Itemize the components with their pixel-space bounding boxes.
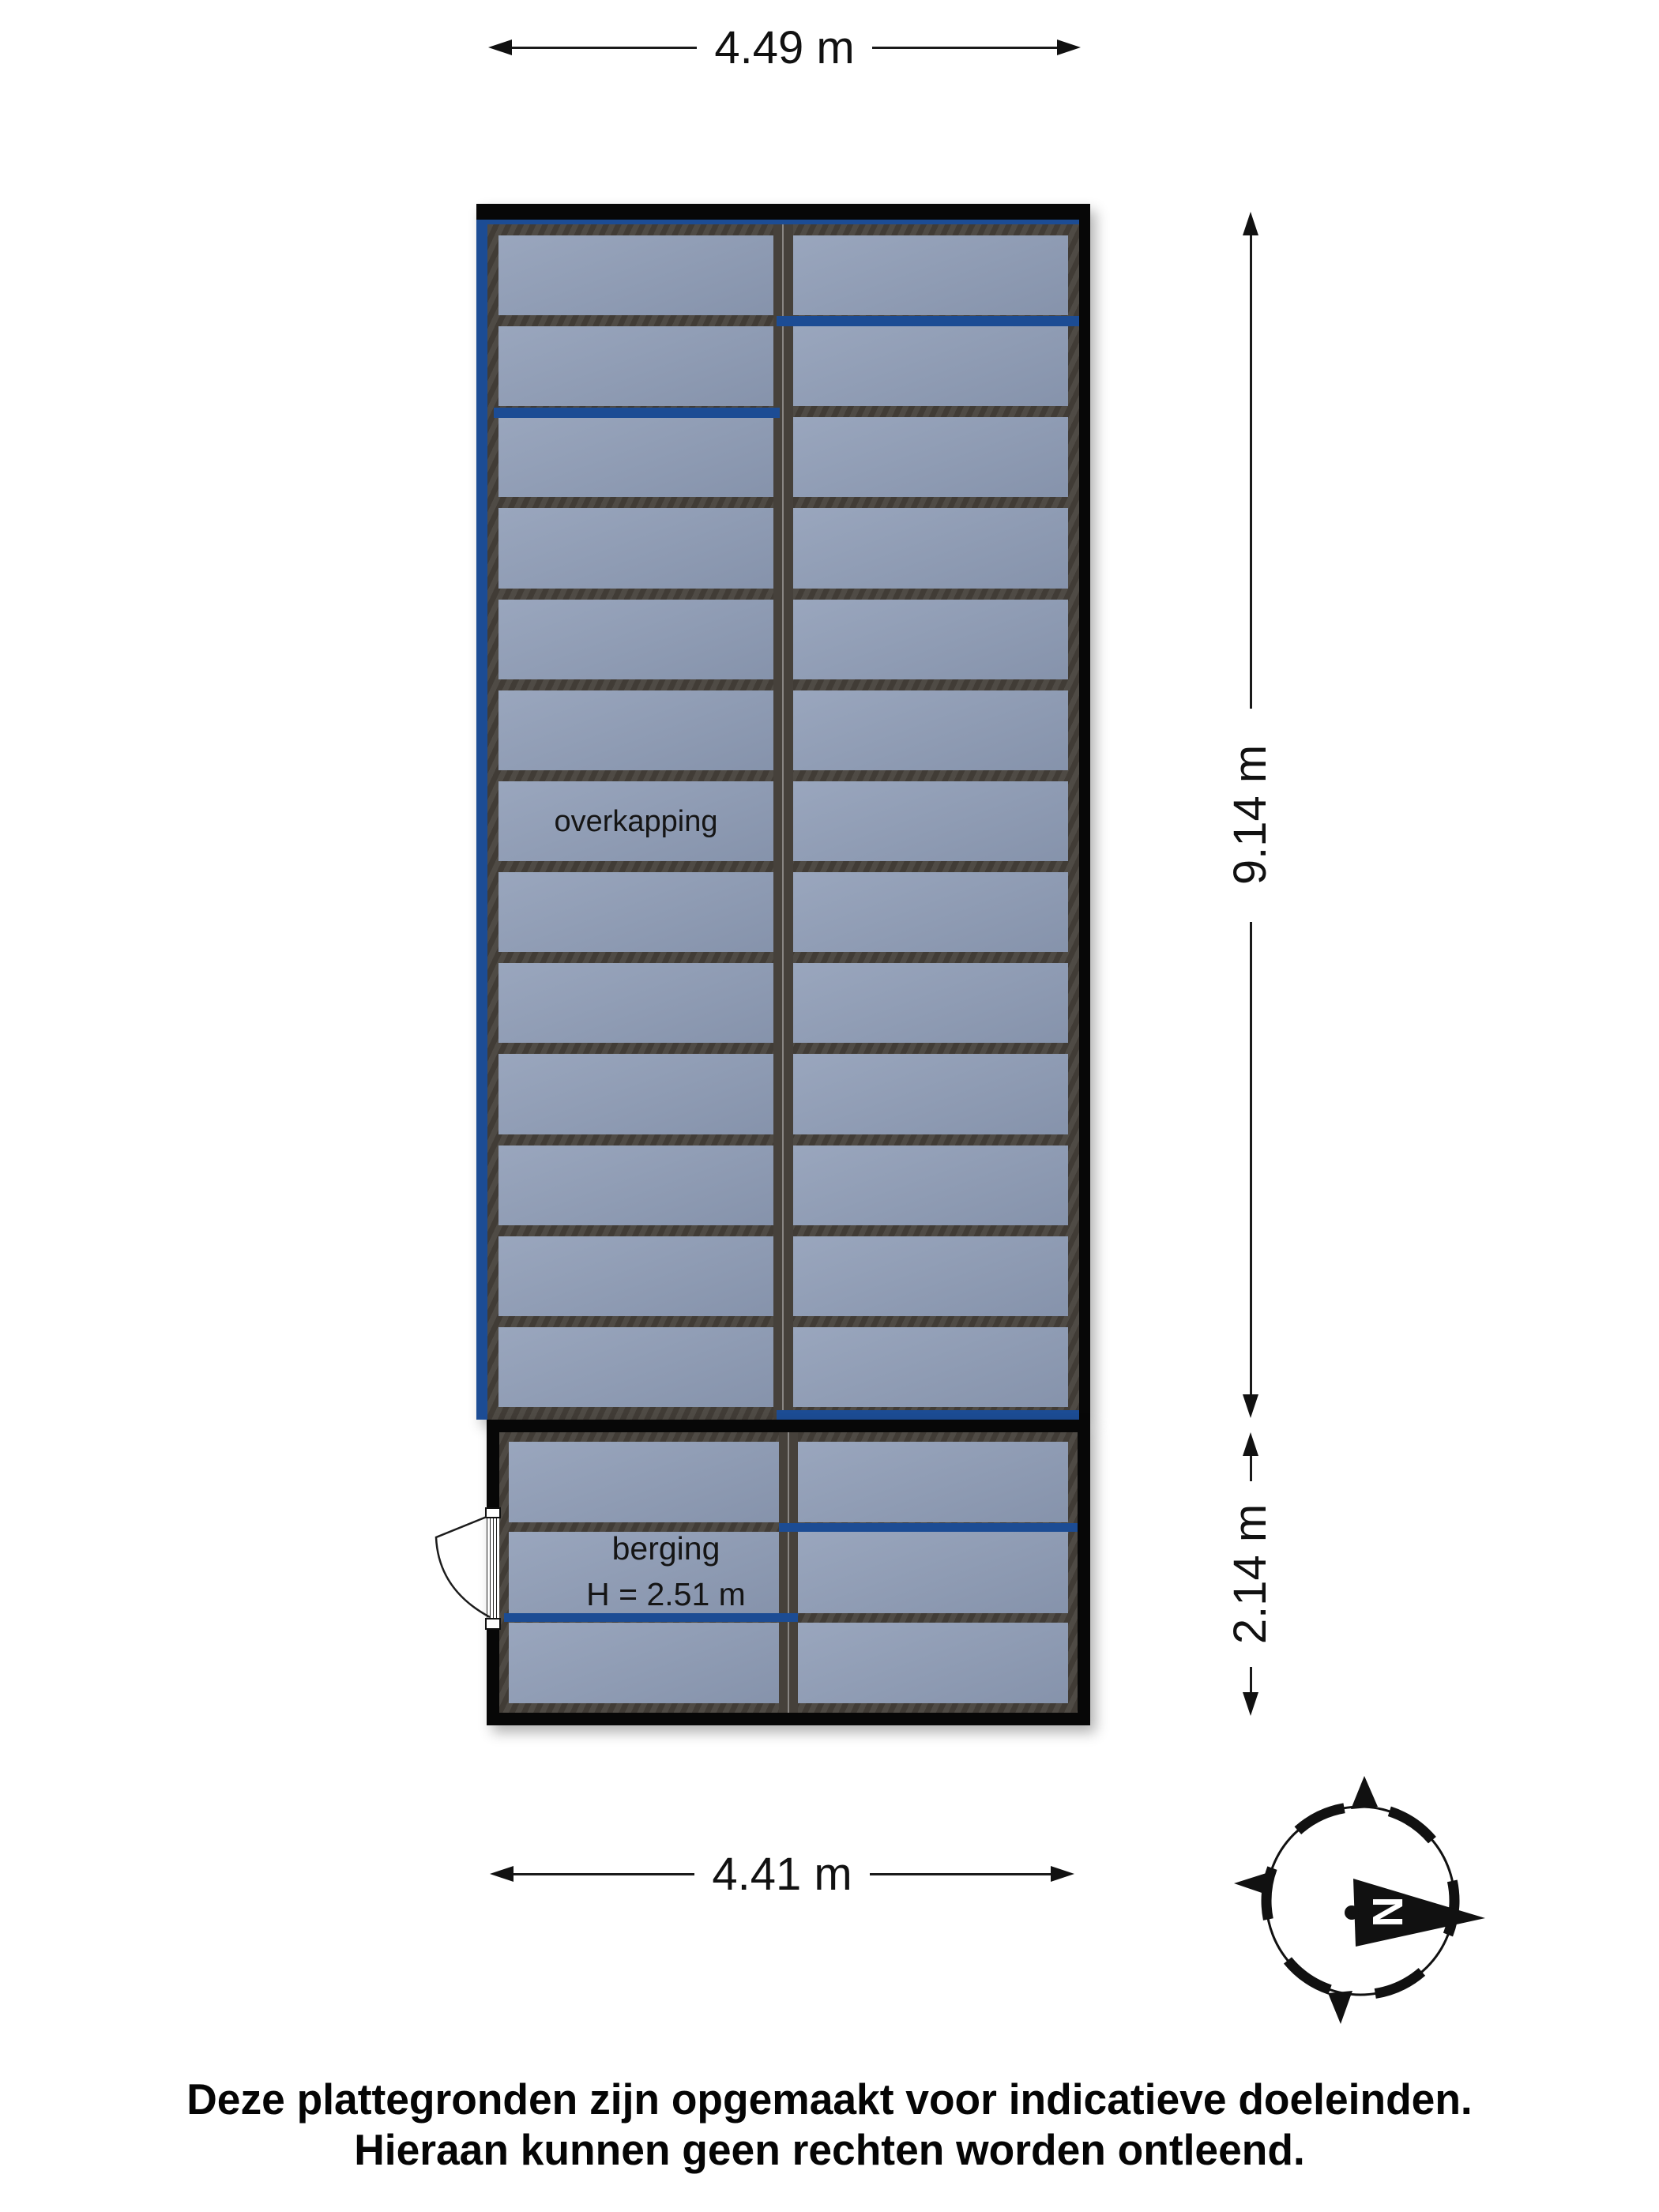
dimension-right-upper: 9.14 m: [1223, 212, 1278, 1418]
roof-panel: [793, 417, 1068, 497]
dimension-bottom-label: 4.41 m: [712, 1848, 852, 1901]
roof-panel: [793, 1327, 1068, 1407]
room-height: H = 2.51 m: [531, 1571, 801, 1617]
roof-beam-accent: [777, 1410, 1079, 1420]
dimension-right-upper-label: 9.14 m: [1224, 745, 1277, 885]
roof-panel: [793, 963, 1068, 1043]
arrowhead-right-icon: [1057, 39, 1081, 55]
dimension-right-lower-label: 2.14 m: [1224, 1504, 1277, 1644]
dimension-line: [1250, 1667, 1252, 1692]
arrowhead-left-icon: [490, 1866, 513, 1882]
roof-edge-accent: [476, 220, 487, 1420]
roof-frame: overkapping: [487, 224, 1079, 1420]
compass-north-label: N: [1364, 1897, 1411, 1928]
roof-panel: [498, 872, 773, 952]
roof-panel: [793, 781, 1068, 861]
roof-panel: [798, 1532, 1068, 1612]
roof-beam-accent: [777, 316, 1079, 326]
roof-beam-accent: [494, 408, 780, 418]
roof-panel: [793, 326, 1068, 406]
arrowhead-up-icon: [1243, 212, 1258, 235]
room-beam-accent: [779, 1523, 1078, 1532]
roof-panel: [798, 1442, 1068, 1522]
roof-panel: [798, 1623, 1068, 1703]
dimension-line: [872, 47, 1057, 49]
room-label-overkapping: overkapping: [498, 805, 773, 839]
disclaimer-line-1: Deze plattegronden zijn opgemaakt voor i…: [25, 2074, 1635, 2124]
arrowhead-right-icon: [1051, 1866, 1074, 1882]
room-name: berging: [531, 1525, 801, 1571]
roof-panel: [498, 1327, 773, 1407]
roof-panel: [509, 1623, 779, 1703]
overkapping-roof: overkapping: [476, 204, 1090, 1420]
dimension-top-label: 4.49 m: [714, 21, 854, 74]
roof-panel: [793, 872, 1068, 952]
dimension-line: [1250, 235, 1252, 709]
roof-panel: [498, 326, 773, 406]
roof-panel: [498, 1236, 773, 1316]
dimension-line: [512, 47, 697, 49]
door-swing-icon: [423, 1501, 510, 1631]
roof-panel: [498, 963, 773, 1043]
berging-room: berging H = 2.51 m: [487, 1420, 1090, 1725]
roof-panel: [793, 690, 1068, 770]
roof-panel: [498, 1145, 773, 1225]
roof-center-beam: [773, 224, 793, 1420]
dimension-right-lower: 2.14 m: [1223, 1432, 1278, 1716]
compass-rose-icon: N: [1232, 1771, 1493, 2032]
arrowhead-left-icon: [488, 39, 512, 55]
roof-panel: [793, 1145, 1068, 1225]
dimension-line: [513, 1873, 694, 1875]
dimension-line: [870, 1873, 1051, 1875]
room-label-berging: berging H = 2.51 m: [531, 1525, 801, 1617]
roof-panel: [509, 1442, 779, 1522]
disclaimer-line-2: Hieraan kunnen geen rechten worden ontle…: [25, 2124, 1635, 2175]
disclaimer-text: Deze plattegronden zijn opgemaakt voor i…: [25, 2074, 1635, 2175]
roof-panel: [498, 235, 773, 315]
arrowhead-down-icon: [1243, 1692, 1258, 1716]
roof-panel: [793, 508, 1068, 588]
roof-panel: [793, 235, 1068, 315]
floorplan-page: 4.49 m overkapping: [0, 0, 1659, 2212]
dimension-line: [1250, 922, 1252, 1395]
roof-panel: [498, 508, 773, 588]
dimension-line: [1250, 1456, 1252, 1481]
roof-panel: [793, 600, 1068, 679]
roof-panel: [793, 1236, 1068, 1316]
roof-panel: [498, 417, 773, 497]
roof-panel-column-right: [793, 224, 1068, 1420]
arrowhead-down-icon: [1243, 1394, 1258, 1418]
roof-panel: [793, 1054, 1068, 1134]
arrowhead-up-icon: [1243, 1432, 1258, 1456]
roof-panel: [498, 600, 773, 679]
roof-panel: [498, 690, 773, 770]
roof-panel: [498, 1054, 773, 1134]
dimension-top: 4.49 m: [488, 32, 1081, 63]
room-panel-column-right: [798, 1432, 1068, 1713]
dimension-bottom: 4.41 m: [490, 1858, 1074, 1890]
room-frame: berging H = 2.51 m: [499, 1432, 1078, 1713]
